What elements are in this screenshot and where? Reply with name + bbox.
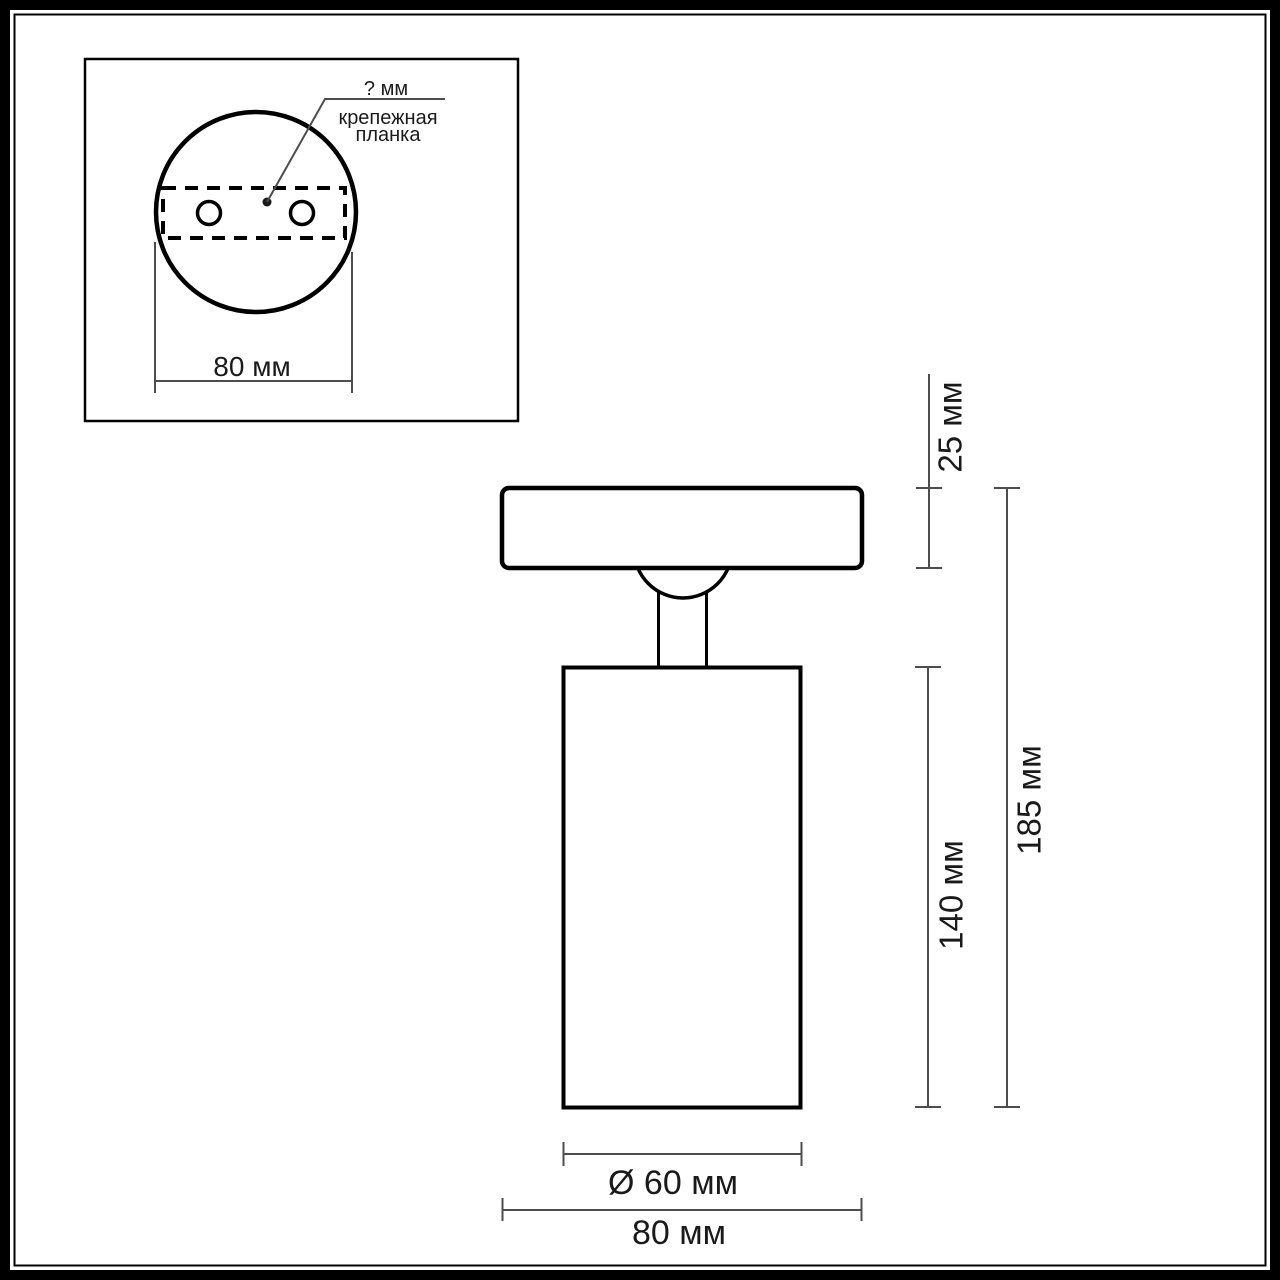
inset-width-dimension-label: 80 мм [213,351,290,382]
technical-drawing-page: ? мм крепежная планка 80 мм 25 мм 185 мм… [0,0,1280,1280]
lamp-body [564,668,801,1108]
dim-label-body-height: 140 мм [933,840,970,950]
dim-label-total-height: 185 мм [1011,745,1048,855]
dim-label-base-width: 80 мм [632,1214,726,1252]
mounting-plate-dashed-outline [163,188,345,238]
callout-value-label: ? мм [364,78,408,100]
ceiling-base [502,488,862,568]
callout-label-line2: планка [356,124,422,146]
dim-label-body-diameter: Ø 60 мм [608,1164,738,1202]
dimension-diagram: ? мм крепежная планка 80 мм 25 мм 185 мм… [0,0,1280,1280]
screw-hole-right [291,202,314,225]
screw-hole-left [198,202,221,225]
dim-label-base-height: 25 мм [932,381,969,472]
